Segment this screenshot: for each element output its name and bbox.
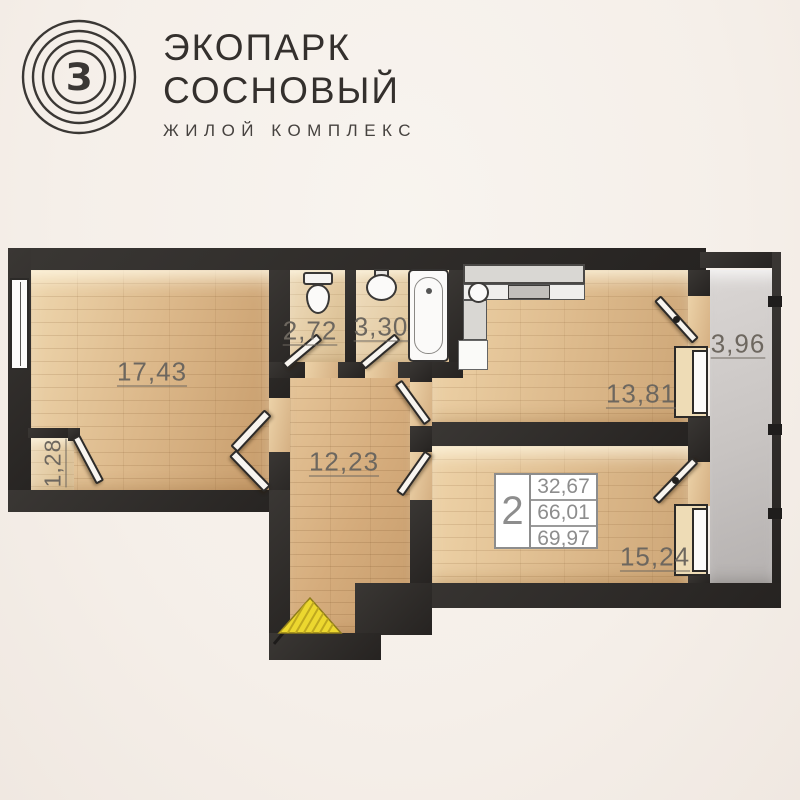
glazing-post bbox=[768, 508, 782, 519]
entrance-marker-icon bbox=[276, 594, 344, 636]
wall-hall-right-b bbox=[410, 426, 432, 452]
wall-living-bottom bbox=[8, 490, 290, 512]
wall-balcony-b bbox=[688, 416, 710, 462]
kitchen-upper-cabinets bbox=[463, 264, 585, 284]
total-area-value: 69,97 bbox=[531, 527, 596, 551]
balcony-floor bbox=[710, 270, 772, 583]
room-label-hallway: 12,23 bbox=[309, 447, 379, 478]
stove bbox=[508, 285, 550, 299]
living-window bbox=[10, 278, 29, 370]
glazing-post bbox=[768, 296, 782, 307]
room-label-kitchen: 13,81 bbox=[606, 379, 676, 410]
room-label-living: 17,43 bbox=[117, 357, 187, 388]
wall-hall-right-a bbox=[410, 362, 432, 382]
wash-basin bbox=[366, 274, 397, 301]
wall-entry-bottom bbox=[269, 633, 381, 660]
room-label-bedroom: 15,24 bbox=[620, 542, 690, 573]
bathtub bbox=[408, 269, 449, 362]
area-values: 32,67 66,01 69,97 bbox=[531, 475, 596, 547]
floorplan-flyer: З ЭКОПАРК СОСНОВЫЙ ЖИЛОЙ КОМПЛЕКС bbox=[0, 0, 800, 800]
living-area-value: 32,67 bbox=[531, 475, 596, 501]
door-threshold bbox=[305, 362, 338, 378]
floor-plan: 17,43 1,28 2,72 3,30 12,23 13,81 15,24 3… bbox=[0, 0, 800, 800]
wall-balcony-top bbox=[700, 252, 776, 268]
room-label-bathroom: 3,30 bbox=[354, 312, 409, 343]
room-label-wc: 2,72 bbox=[283, 316, 338, 347]
wall-hall-right-c bbox=[410, 500, 432, 585]
wall-top bbox=[8, 248, 706, 270]
rooms-count: 2 bbox=[496, 475, 531, 547]
glazing-post bbox=[768, 424, 782, 435]
kitchen-window bbox=[692, 350, 708, 414]
kitchen-appliance bbox=[458, 340, 488, 370]
wall-corner-block bbox=[355, 583, 432, 635]
wall-balcony-a bbox=[688, 270, 710, 296]
kitchen-sink bbox=[468, 282, 489, 303]
bedroom-window bbox=[692, 508, 708, 572]
wall-kitchen-bedroom bbox=[432, 422, 688, 446]
apartment-info-card: 2 32,67 66,01 69,97 bbox=[494, 473, 598, 549]
door-threshold bbox=[269, 398, 290, 452]
door-handle bbox=[672, 315, 682, 325]
room-label-closet: 1,28 bbox=[40, 439, 67, 488]
kitchen-counter-return bbox=[463, 300, 487, 340]
area-value: 66,01 bbox=[531, 501, 596, 527]
room-label-balcony: 3,96 bbox=[711, 329, 766, 360]
